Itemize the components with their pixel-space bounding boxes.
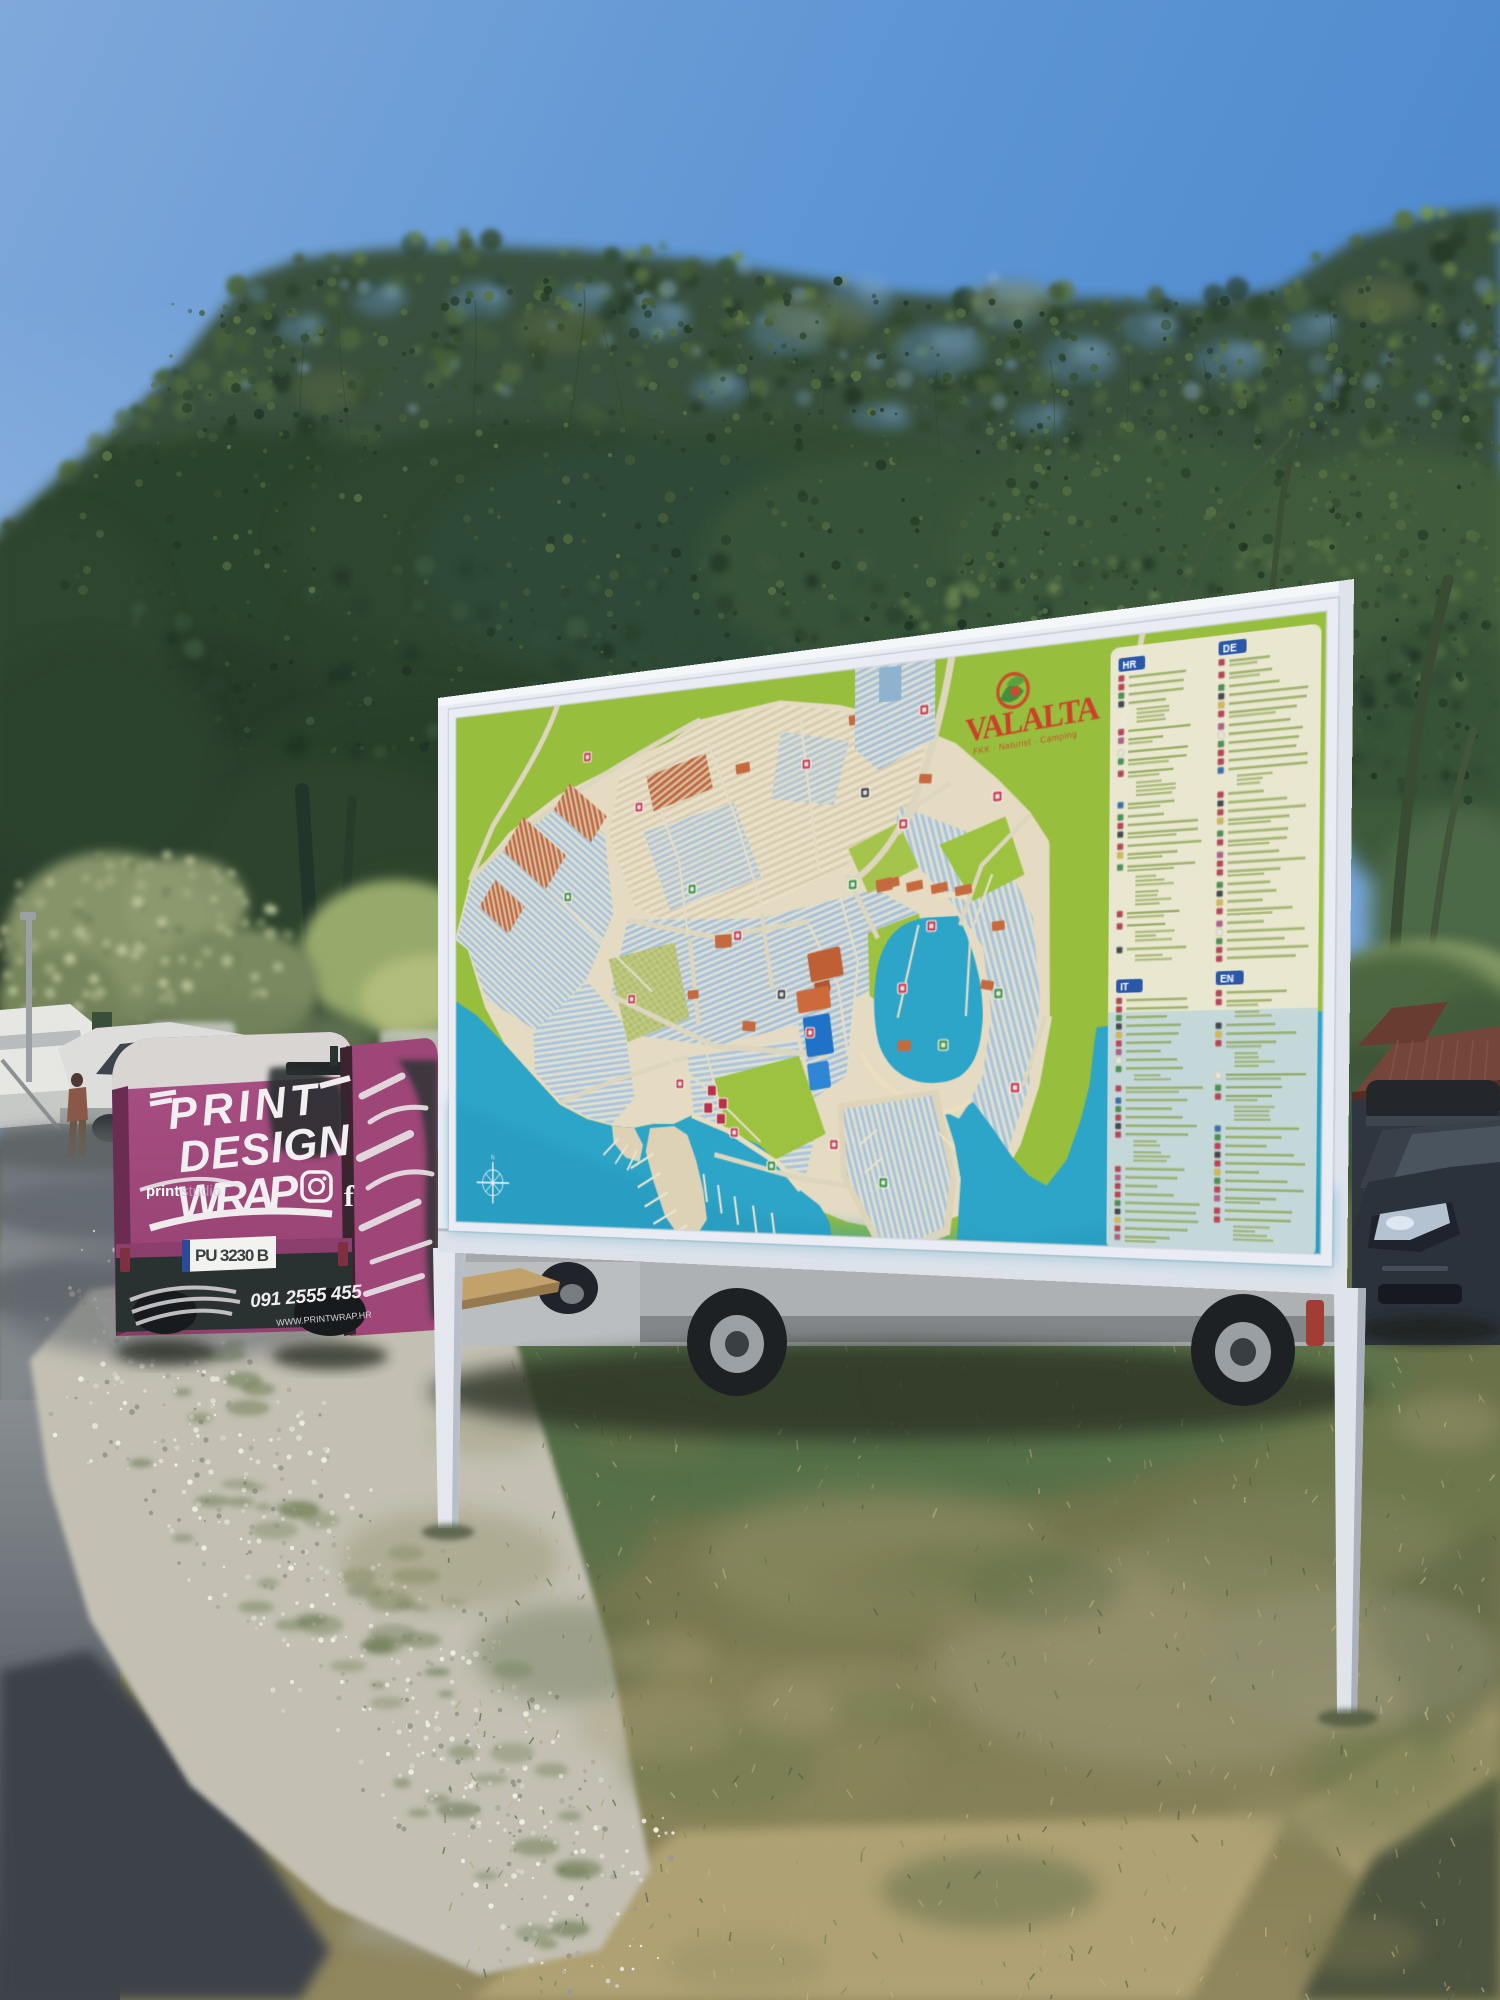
svg-text:N: N (491, 1155, 495, 1162)
svg-text:IT: IT (1120, 980, 1129, 993)
svg-text:print: print (146, 1183, 179, 1200)
svg-text:DE: DE (1223, 641, 1237, 656)
svg-text:PU 3230 B: PU 3230 B (195, 1246, 269, 1265)
svg-text:f: f (344, 1180, 355, 1213)
svg-text:EN: EN (1220, 972, 1234, 985)
svg-text:studio: studio (181, 1183, 221, 1200)
svg-text:HR: HR (1123, 657, 1138, 671)
